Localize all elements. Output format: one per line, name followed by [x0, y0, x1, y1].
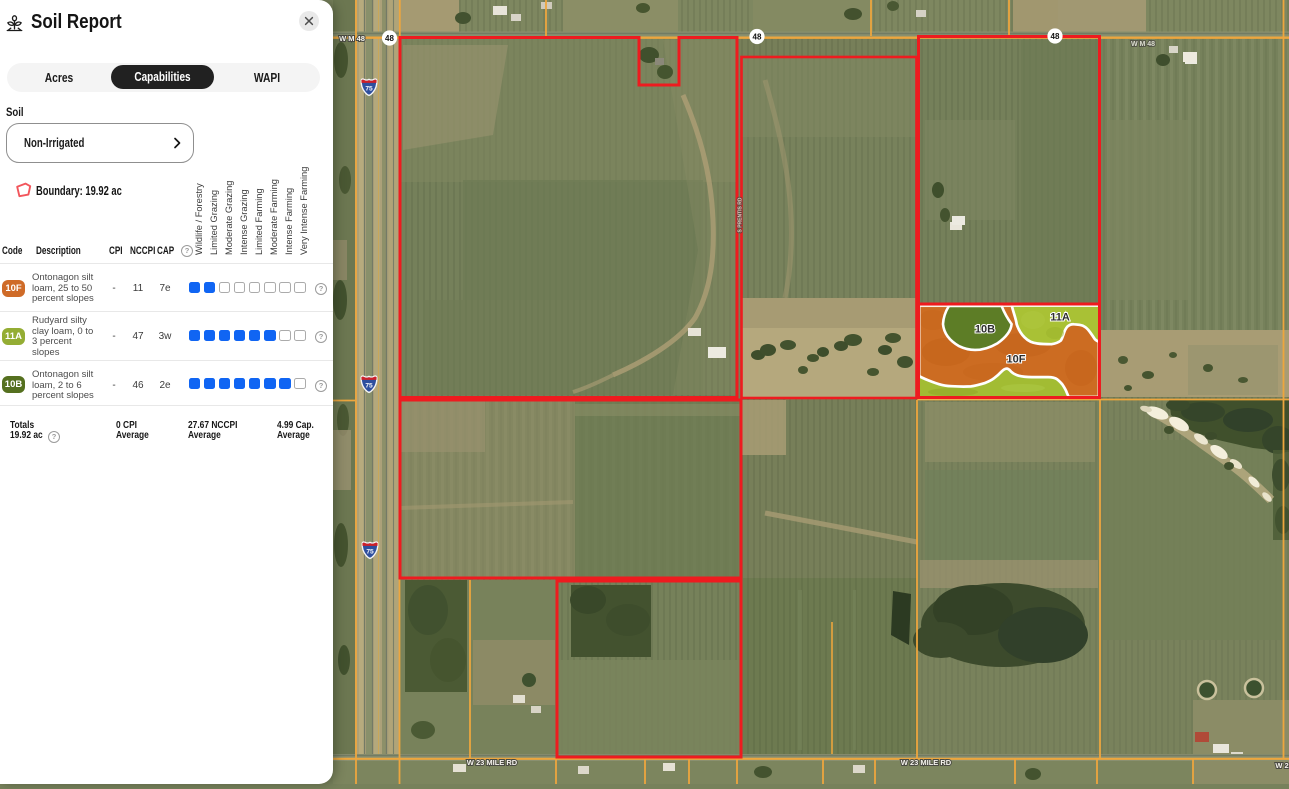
svg-text:W M 48: W M 48 — [339, 34, 365, 43]
svg-text:10F: 10F — [1007, 354, 1026, 366]
svg-text:11A: 11A — [1050, 312, 1070, 324]
svg-text:48: 48 — [1051, 32, 1060, 41]
svg-text:48: 48 — [385, 34, 394, 43]
svg-text:S PRENTIS RD: S PRENTIS RD — [738, 197, 744, 232]
svg-text:10B: 10B — [975, 324, 995, 336]
svg-text:W 23 MILE RD: W 23 MILE RD — [901, 758, 952, 767]
svg-text:W 23 MILE RD: W 23 MILE RD — [467, 758, 518, 767]
svg-text:W M 48: W M 48 — [1131, 41, 1155, 48]
svg-text:W 2: W 2 — [1275, 761, 1288, 770]
svg-text:48: 48 — [753, 33, 762, 42]
